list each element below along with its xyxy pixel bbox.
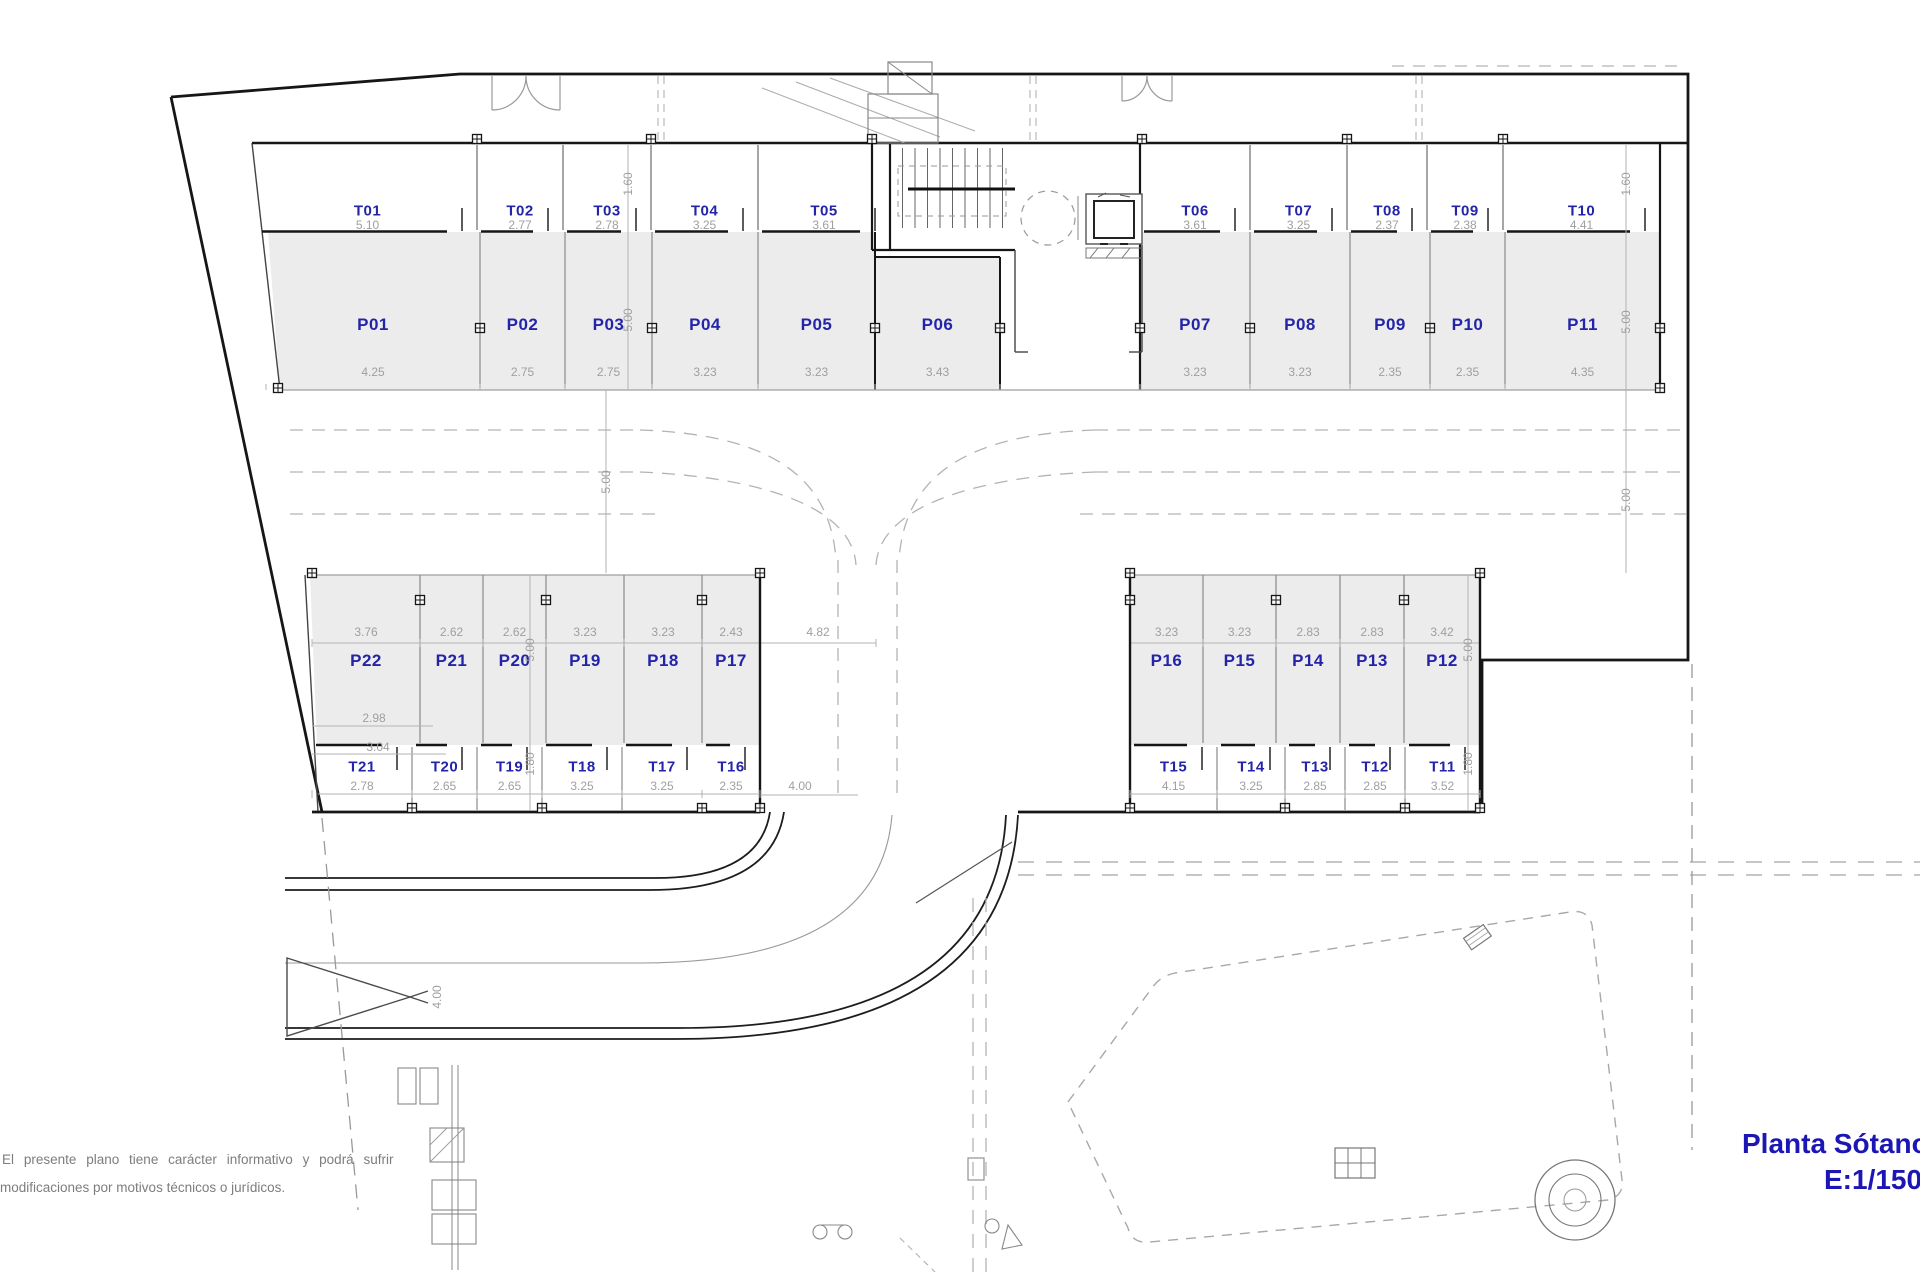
vertical-dimension-4: 1.80 [523,752,537,775]
storage-room-label-T14: T14 [1237,759,1264,776]
storage-room-label-T11: T11 [1429,759,1456,776]
parking-stall-size-P11: 4.35 [1571,365,1594,379]
vertical-dimension-2: 5.00 [599,470,613,493]
parking-stall-label-P21: P21 [436,651,468,671]
parking-stall-label-P22: P22 [350,651,382,671]
parking-stall-label-P02: P02 [507,315,539,335]
parking-stall-size-P22: 3.76 [354,625,377,639]
storage-room-label-T20: T20 [431,759,458,776]
storage-room-size-T17: 3.25 [650,779,673,793]
storage-room-size-T19: 2.65 [498,779,521,793]
parking-stall-label-P17: P17 [715,651,747,671]
storage-room-label-T01: T01 [354,203,381,220]
parking-stall-size-P20: 2.62 [503,625,526,639]
parking-stall-size-P19: 3.23 [573,625,596,639]
parking-stall-size-P15: 3.23 [1228,625,1251,639]
parking-stall-label-P01: P01 [357,315,389,335]
storage-room-size-T06: 3.61 [1183,218,1206,232]
parking-stall-label-P07: P07 [1179,315,1211,335]
floor-plan-page: T015.10T022.77T032.78T043.25T053.61T063.… [0,0,1920,1280]
storage-room-label-T17: T17 [648,759,675,776]
parking-stall-size-P04: 3.23 [693,365,716,379]
storage-room-label-T19: T19 [496,759,523,776]
dimension-road-mouth: 4.00 [788,779,811,793]
storage-room-label-T13: T13 [1301,759,1328,776]
storage-room-size-T09: 2.38 [1453,218,1476,232]
storage-room-size-T10: 4.41 [1570,218,1593,232]
plan-title: Planta Sótano [1742,1128,1920,1160]
parking-stall-size-P07: 3.23 [1183,365,1206,379]
storage-room-label-T09: T09 [1451,203,1478,220]
parking-stall-label-P19: P19 [569,651,601,671]
storage-room-size-T20: 2.65 [433,779,456,793]
parking-stall-label-P14: P14 [1292,651,1324,671]
storage-room-label-T18: T18 [568,759,595,776]
parking-stall-size-P14: 2.83 [1296,625,1319,639]
parking-stall-size-P18: 3.23 [651,625,674,639]
parking-stall-size-P05: 3.23 [805,365,828,379]
dimension-ramp-width: 4.82 [806,625,829,639]
vertical-dimension-0: 1.60 [621,172,635,195]
storage-room-label-T10: T10 [1568,203,1595,220]
parking-stall-label-P11: P11 [1567,315,1598,335]
storage-room-size-T16: 2.35 [719,779,742,793]
parking-stall-size-P06: 3.43 [926,365,949,379]
storage-room-size-T21: 2.78 [350,779,373,793]
parking-stall-size-P03: 2.75 [597,365,620,379]
storage-room-size-T15: 4.15 [1162,779,1185,793]
storage-room-label-T07: T07 [1285,203,1312,220]
vertical-dimension-1: 5.00 [621,308,635,331]
dimension-entry-ramp: 4.00 [430,985,444,1008]
parking-stall-label-P06: P06 [922,315,954,335]
parking-stall-size-P17: 2.43 [719,625,742,639]
storage-room-size-T14: 3.25 [1239,779,1262,793]
vertical-dimension-9: 1.80 [1461,752,1475,775]
plan-scale: E:1/150 [1824,1164,1920,1196]
vertical-dimension-5: 1.60 [1619,172,1633,195]
parking-stall-label-P12: P12 [1426,651,1458,671]
parking-stall-label-P08: P08 [1284,315,1316,335]
storage-room-size-T04: 3.25 [693,218,716,232]
parking-stall-size-P21: 2.62 [440,625,463,639]
parking-stall-label-P03: P03 [593,315,625,335]
parking-stall-size-P16: 3.23 [1155,625,1178,639]
disclaimer-line-1: El presente plano tiene carácter informa… [2,1152,394,1167]
parking-stall-label-P09: P09 [1374,315,1406,335]
parking-stall-size-P12: 3.42 [1430,625,1453,639]
parking-stall-size-P13: 2.83 [1360,625,1383,639]
parking-stall-label-P10: P10 [1452,315,1484,335]
dimension-p22-a: 2.98 [362,711,385,725]
parking-stall-size-P09: 2.35 [1378,365,1401,379]
parking-stall-size-P10: 2.35 [1456,365,1479,379]
storage-room-label-T15: T15 [1160,759,1187,776]
parking-stall-label-P15: P15 [1224,651,1256,671]
storage-room-label-T03: T03 [593,203,620,220]
storage-room-label-T04: T04 [691,203,718,220]
parking-stall-label-P13: P13 [1356,651,1388,671]
vertical-dimension-7: 5.00 [1619,488,1633,511]
parking-stall-label-P18: P18 [647,651,679,671]
storage-room-label-T06: T06 [1181,203,1208,220]
parking-stall-size-P01: 4.25 [361,365,384,379]
disclaimer-line-2: modificaciones por motivos técnicos o ju… [0,1180,285,1195]
parking-stall-size-P02: 2.75 [511,365,534,379]
parking-stall-label-P04: P04 [689,315,721,335]
storage-room-size-T01: 5.10 [356,218,379,232]
storage-room-label-T12: T12 [1361,759,1388,776]
storage-room-size-T12: 2.85 [1363,779,1386,793]
storage-room-size-T07: 3.25 [1287,218,1310,232]
parking-stall-size-P08: 3.23 [1288,365,1311,379]
dimension-p22-b: 3.04 [366,740,389,754]
storage-room-size-T08: 2.37 [1375,218,1398,232]
storage-room-label-T16: T16 [717,759,744,776]
storage-room-size-T02: 2.77 [508,218,531,232]
storage-room-label-T21: T21 [348,759,375,776]
parking-stall-label-P16: P16 [1151,651,1183,671]
storage-room-label-T05: T05 [810,203,837,220]
vertical-dimension-8: 5.00 [1461,638,1475,661]
storage-room-size-T18: 3.25 [570,779,593,793]
parking-stall-label-P05: P05 [801,315,833,335]
storage-room-label-T08: T08 [1373,203,1400,220]
vertical-dimension-6: 5.00 [1619,310,1633,333]
storage-room-size-T03: 2.78 [595,218,618,232]
storage-room-size-T13: 2.85 [1303,779,1326,793]
storage-room-label-T02: T02 [506,203,533,220]
vertical-dimension-3: 5.00 [523,638,537,661]
storage-room-size-T11: 3.52 [1431,779,1454,793]
storage-room-size-T05: 3.61 [812,218,835,232]
